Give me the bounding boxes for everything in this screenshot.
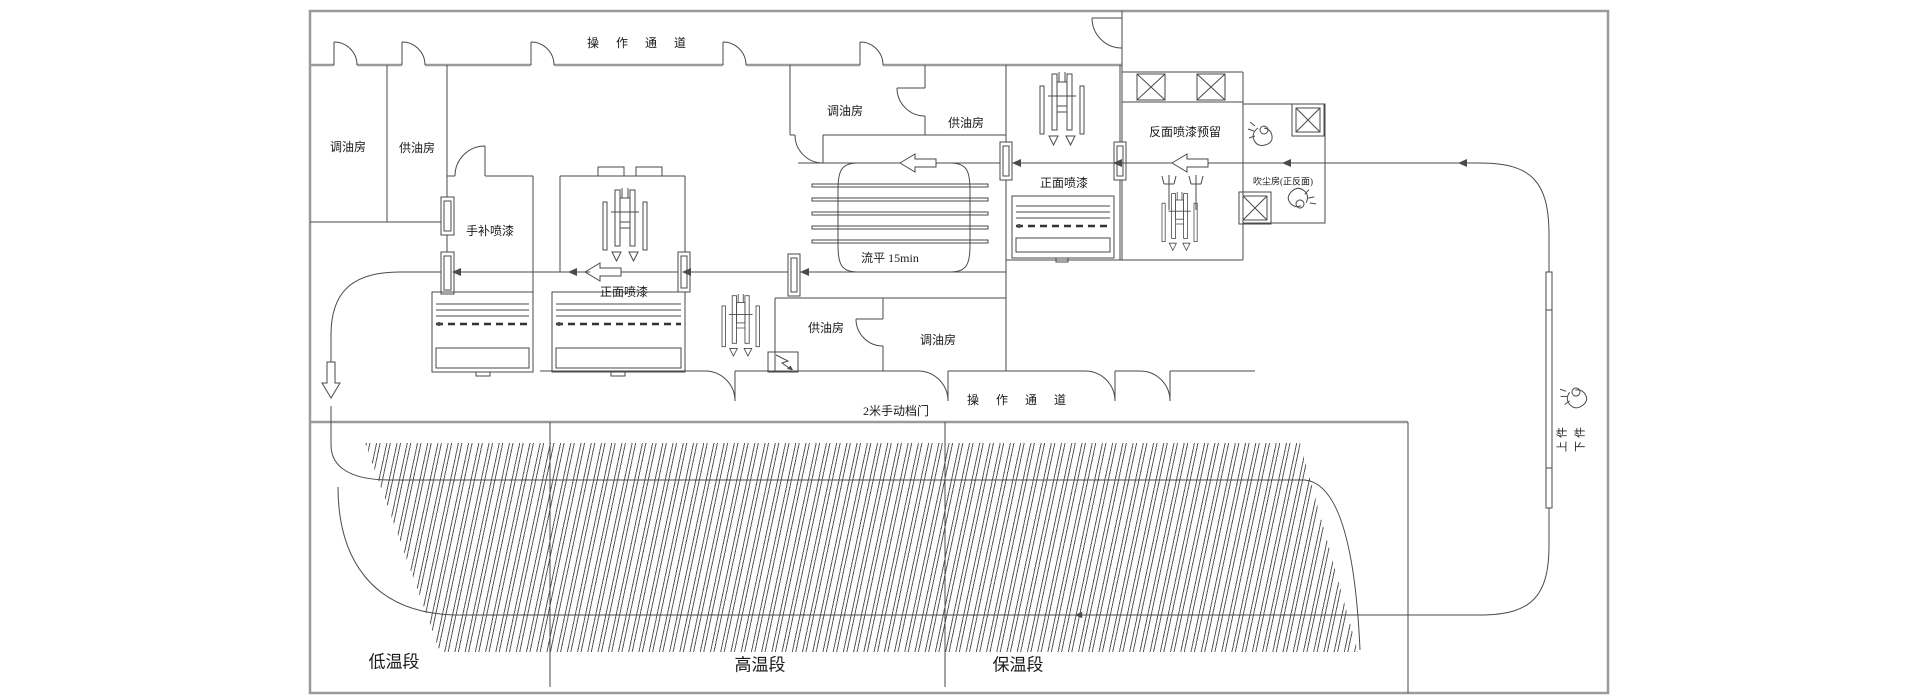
label-oil-supply-2: 供油房 <box>948 117 984 129</box>
label-leveling: 流平 15min <box>861 252 919 264</box>
doors <box>334 18 1170 401</box>
paint-robot-right <box>1040 72 1084 145</box>
label-hold-temp: 保温段 <box>993 657 1044 674</box>
label-oil-mix-1: 调油房 <box>330 141 366 153</box>
label-corridor-bottom: 操 作 通 道 <box>967 394 1073 406</box>
booth-door-frames <box>441 142 1126 296</box>
operator-figures <box>1248 122 1589 412</box>
paint-robot-center <box>603 188 647 261</box>
load-unload-platform <box>1546 272 1552 508</box>
label-manual-door: 2米手动档门 <box>863 405 929 417</box>
spray-machine-left <box>432 292 533 376</box>
lightning-icon <box>768 352 798 372</box>
label-dust-room: 吹尘房(正反面) <box>1253 178 1313 187</box>
label-oil-mix-3: 调油房 <box>920 334 956 346</box>
floor-plan-canvas: 操 作 通 道 调油房 供油房 手补喷漆 正面喷漆 流平 15min 调油房 供… <box>0 0 1920 700</box>
interior-walls <box>310 11 1325 687</box>
label-high-temp: 高温段 <box>735 657 786 674</box>
outer-walls <box>310 11 1608 693</box>
label-front-spray-right: 正面喷漆 <box>1040 177 1088 189</box>
label-oil-supply-1: 供油房 <box>399 142 435 154</box>
label-back-spray: 反面喷漆预留 <box>1149 126 1221 138</box>
cad-linework <box>0 0 1920 700</box>
paint-robot-middle <box>722 294 759 356</box>
label-front-spray-left: 正面喷漆 <box>600 286 648 298</box>
label-low-temp: 低温段 <box>369 654 420 671</box>
label-corridor-top: 操 作 通 道 <box>587 37 693 49</box>
spray-machine-right <box>1012 196 1114 262</box>
label-oil-mix-2: 调油房 <box>827 105 863 117</box>
exhaust-fans <box>1137 74 1324 224</box>
paint-robot-backspray <box>1162 175 1203 250</box>
label-unload: 下件 <box>1576 424 1587 452</box>
spray-machine-center <box>552 292 685 376</box>
label-touch-up: 手补喷漆 <box>466 225 514 237</box>
label-load: 上件 <box>1558 424 1569 452</box>
label-oil-supply-3: 供油房 <box>808 322 844 334</box>
